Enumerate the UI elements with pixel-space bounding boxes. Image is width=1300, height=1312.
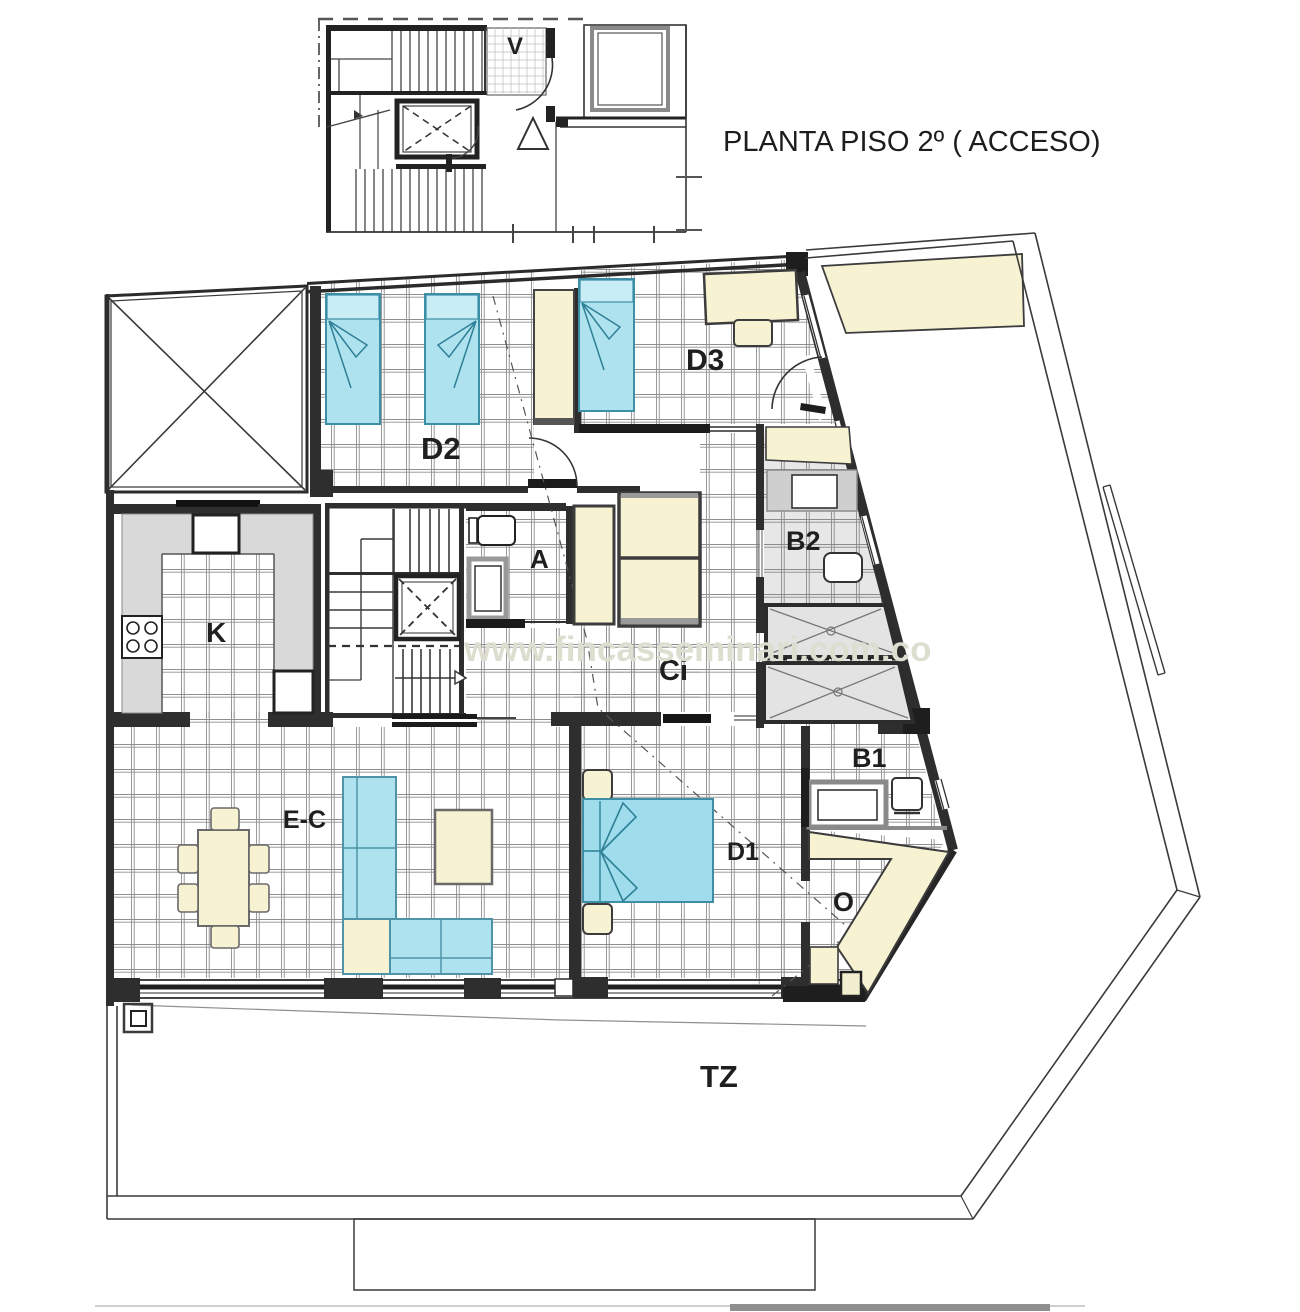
- svg-text:K: K: [206, 617, 226, 648]
- svg-text:TZ: TZ: [700, 1059, 738, 1094]
- svg-text:O: O: [833, 887, 854, 917]
- svg-text:B1: B1: [852, 743, 887, 773]
- svg-text:D2: D2: [421, 431, 461, 466]
- svg-text:V: V: [507, 33, 523, 60]
- svg-text:B2: B2: [786, 526, 821, 556]
- svg-text:D3: D3: [686, 344, 724, 377]
- svg-text:D1: D1: [727, 838, 759, 866]
- svg-text:www.fincasseminari.com.co: www.fincasseminari.com.co: [463, 630, 931, 669]
- svg-text:PLANTA PISO 2º ( ACCESO): PLANTA PISO 2º ( ACCESO): [723, 126, 1101, 158]
- svg-text:A: A: [530, 544, 549, 574]
- svg-text:E-C: E-C: [283, 806, 326, 834]
